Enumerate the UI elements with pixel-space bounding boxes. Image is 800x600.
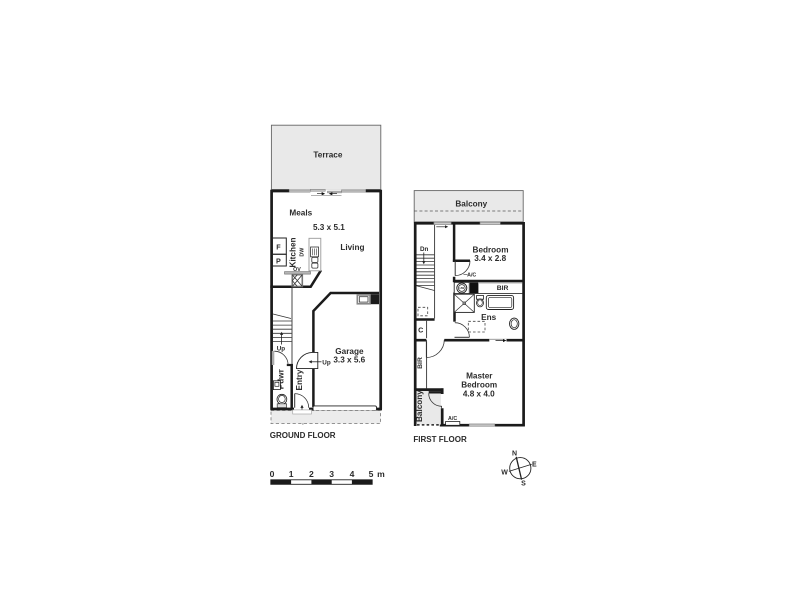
svg-text:DW: DW bbox=[300, 248, 306, 257]
svg-text:Living: Living bbox=[340, 243, 364, 252]
svg-text:3.4 x 2.8: 3.4 x 2.8 bbox=[474, 254, 506, 263]
svg-text:GROUND FLOOR: GROUND FLOOR bbox=[270, 431, 336, 440]
svg-text:2: 2 bbox=[309, 469, 314, 479]
svg-text:Master: Master bbox=[466, 371, 493, 380]
svg-text:3: 3 bbox=[329, 469, 334, 479]
svg-text:Up: Up bbox=[322, 359, 331, 366]
svg-text:Terrace: Terrace bbox=[313, 151, 342, 160]
svg-text:0: 0 bbox=[270, 469, 275, 479]
svg-text:Entry: Entry bbox=[295, 369, 304, 390]
svg-text:HW: HW bbox=[459, 286, 464, 290]
svg-text:P: P bbox=[276, 256, 281, 265]
svg-text:W: W bbox=[501, 469, 508, 476]
svg-text:Meals: Meals bbox=[289, 209, 312, 218]
svg-text:E: E bbox=[532, 461, 537, 468]
svg-text:F: F bbox=[276, 243, 281, 252]
svg-text:Ens: Ens bbox=[481, 313, 496, 322]
svg-text:4: 4 bbox=[350, 469, 355, 479]
svg-text:4.8 x 4.0: 4.8 x 4.0 bbox=[463, 390, 495, 399]
svg-text:S: S bbox=[521, 481, 526, 488]
svg-text:m: m bbox=[377, 469, 385, 479]
svg-text:Balcony: Balcony bbox=[455, 199, 487, 208]
svg-text:5.3 x 5.1: 5.3 x 5.1 bbox=[313, 223, 345, 232]
svg-text:OV: OV bbox=[293, 267, 301, 273]
svg-text:5: 5 bbox=[369, 469, 374, 479]
svg-text:1: 1 bbox=[289, 469, 294, 479]
svg-text:BIR: BIR bbox=[417, 357, 424, 369]
svg-text:Bedroom: Bedroom bbox=[461, 381, 497, 390]
svg-text:A/C: A/C bbox=[467, 273, 476, 279]
svg-text:A/C: A/C bbox=[448, 416, 457, 422]
svg-text:N: N bbox=[512, 450, 517, 457]
svg-text:BIR: BIR bbox=[497, 285, 509, 292]
svg-text:3.3 x 5.6: 3.3 x 5.6 bbox=[333, 355, 365, 364]
svg-text:Balcony: Balcony bbox=[415, 390, 424, 422]
svg-text:C: C bbox=[418, 325, 423, 334]
svg-text:Dn: Dn bbox=[420, 246, 429, 253]
svg-text:Kitchen: Kitchen bbox=[289, 237, 298, 267]
svg-text:FIRST FLOOR: FIRST FLOOR bbox=[413, 435, 467, 444]
